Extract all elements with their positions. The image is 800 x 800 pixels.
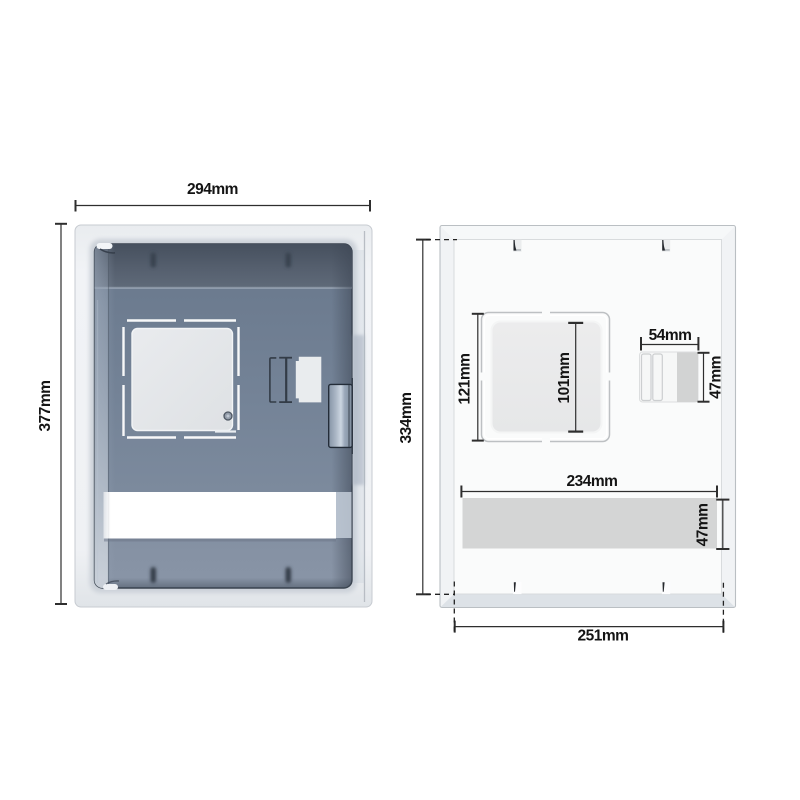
- svg-text:54mm: 54mm: [649, 327, 692, 344]
- svg-text:234mm: 234mm: [567, 473, 618, 490]
- svg-text:251mm: 251mm: [578, 628, 629, 645]
- svg-text:47mm: 47mm: [695, 504, 712, 547]
- svg-text:101mm: 101mm: [556, 353, 573, 404]
- svg-text:377mm: 377mm: [37, 381, 54, 432]
- svg-text:334mm: 334mm: [398, 393, 415, 444]
- svg-text:294mm: 294mm: [187, 181, 238, 198]
- svg-text:121mm: 121mm: [457, 354, 474, 405]
- svg-text:47mm: 47mm: [708, 356, 725, 399]
